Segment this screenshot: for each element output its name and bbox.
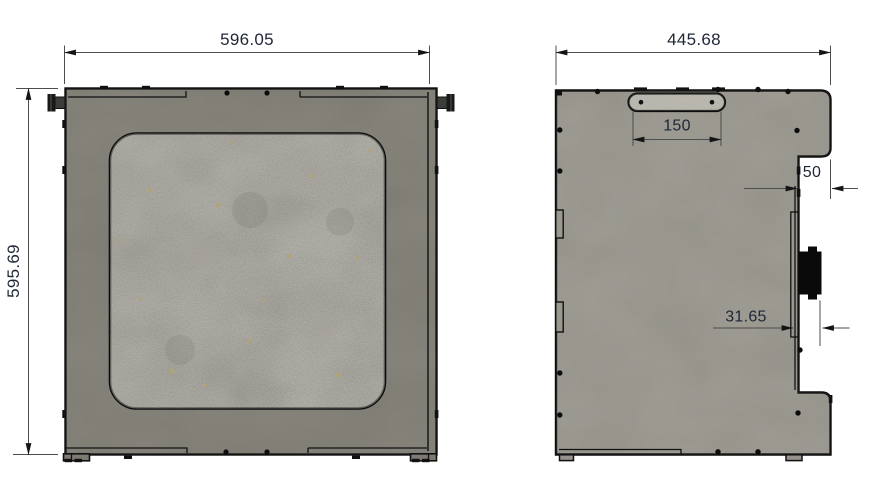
side-panel-shading — [556, 91, 831, 455]
dimension-label-notch: 50 — [803, 164, 821, 181]
window-panel — [110, 134, 385, 409]
side-view[interactable] — [556, 87, 833, 461]
dimension-front-width[interactable]: 596.05 — [65, 30, 430, 84]
dimension-front-height[interactable]: 595.69 — [4, 89, 58, 455]
foot-right — [411, 454, 437, 462]
dimension-side-width[interactable]: 445.68 — [556, 30, 831, 85]
handle-slot — [629, 94, 726, 112]
dimension-label-front-height: 595.69 — [4, 244, 23, 298]
dimension-label-front-width: 596.05 — [220, 30, 274, 49]
thumbscrew-left — [48, 94, 66, 112]
handle-screw-left — [639, 100, 644, 105]
front-view[interactable] — [48, 86, 455, 462]
drawing-canvas: 596.05 595.69 445.68 150 50 31.65 — [0, 0, 889, 487]
dimension-label-side-width: 445.68 — [667, 30, 721, 49]
dimension-label-handle-slot: 150 — [663, 118, 691, 135]
foot-left — [64, 454, 90, 462]
handle-screw-right — [710, 100, 715, 105]
thumbscrew-right — [437, 94, 455, 112]
dimension-label-connector-offset: 31.65 — [725, 309, 767, 326]
io-connector — [799, 247, 822, 300]
engineering-drawing: 596.05 595.69 445.68 150 50 31.65 — [0, 0, 889, 487]
corner-mark — [556, 91, 562, 96]
